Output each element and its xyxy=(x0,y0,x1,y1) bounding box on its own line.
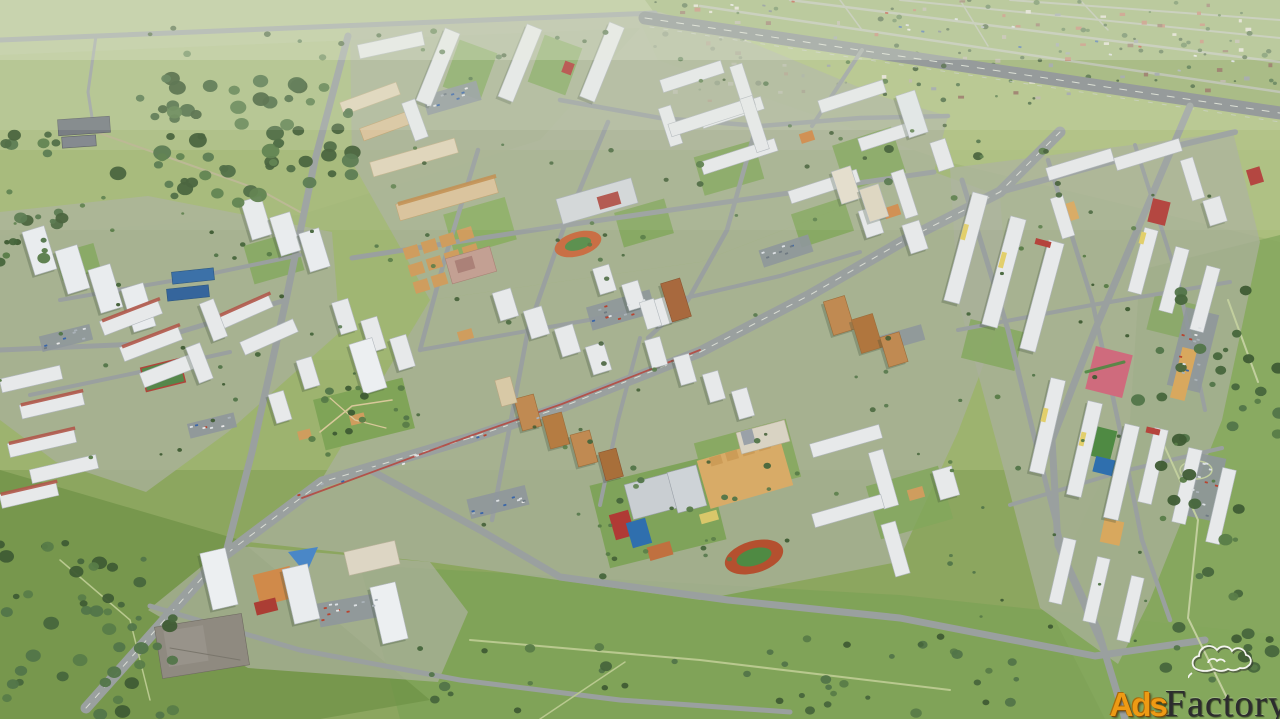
aerial-render-image: AdsFactory xyxy=(0,0,1280,719)
aerial-city-render-canvas xyxy=(0,0,1280,719)
